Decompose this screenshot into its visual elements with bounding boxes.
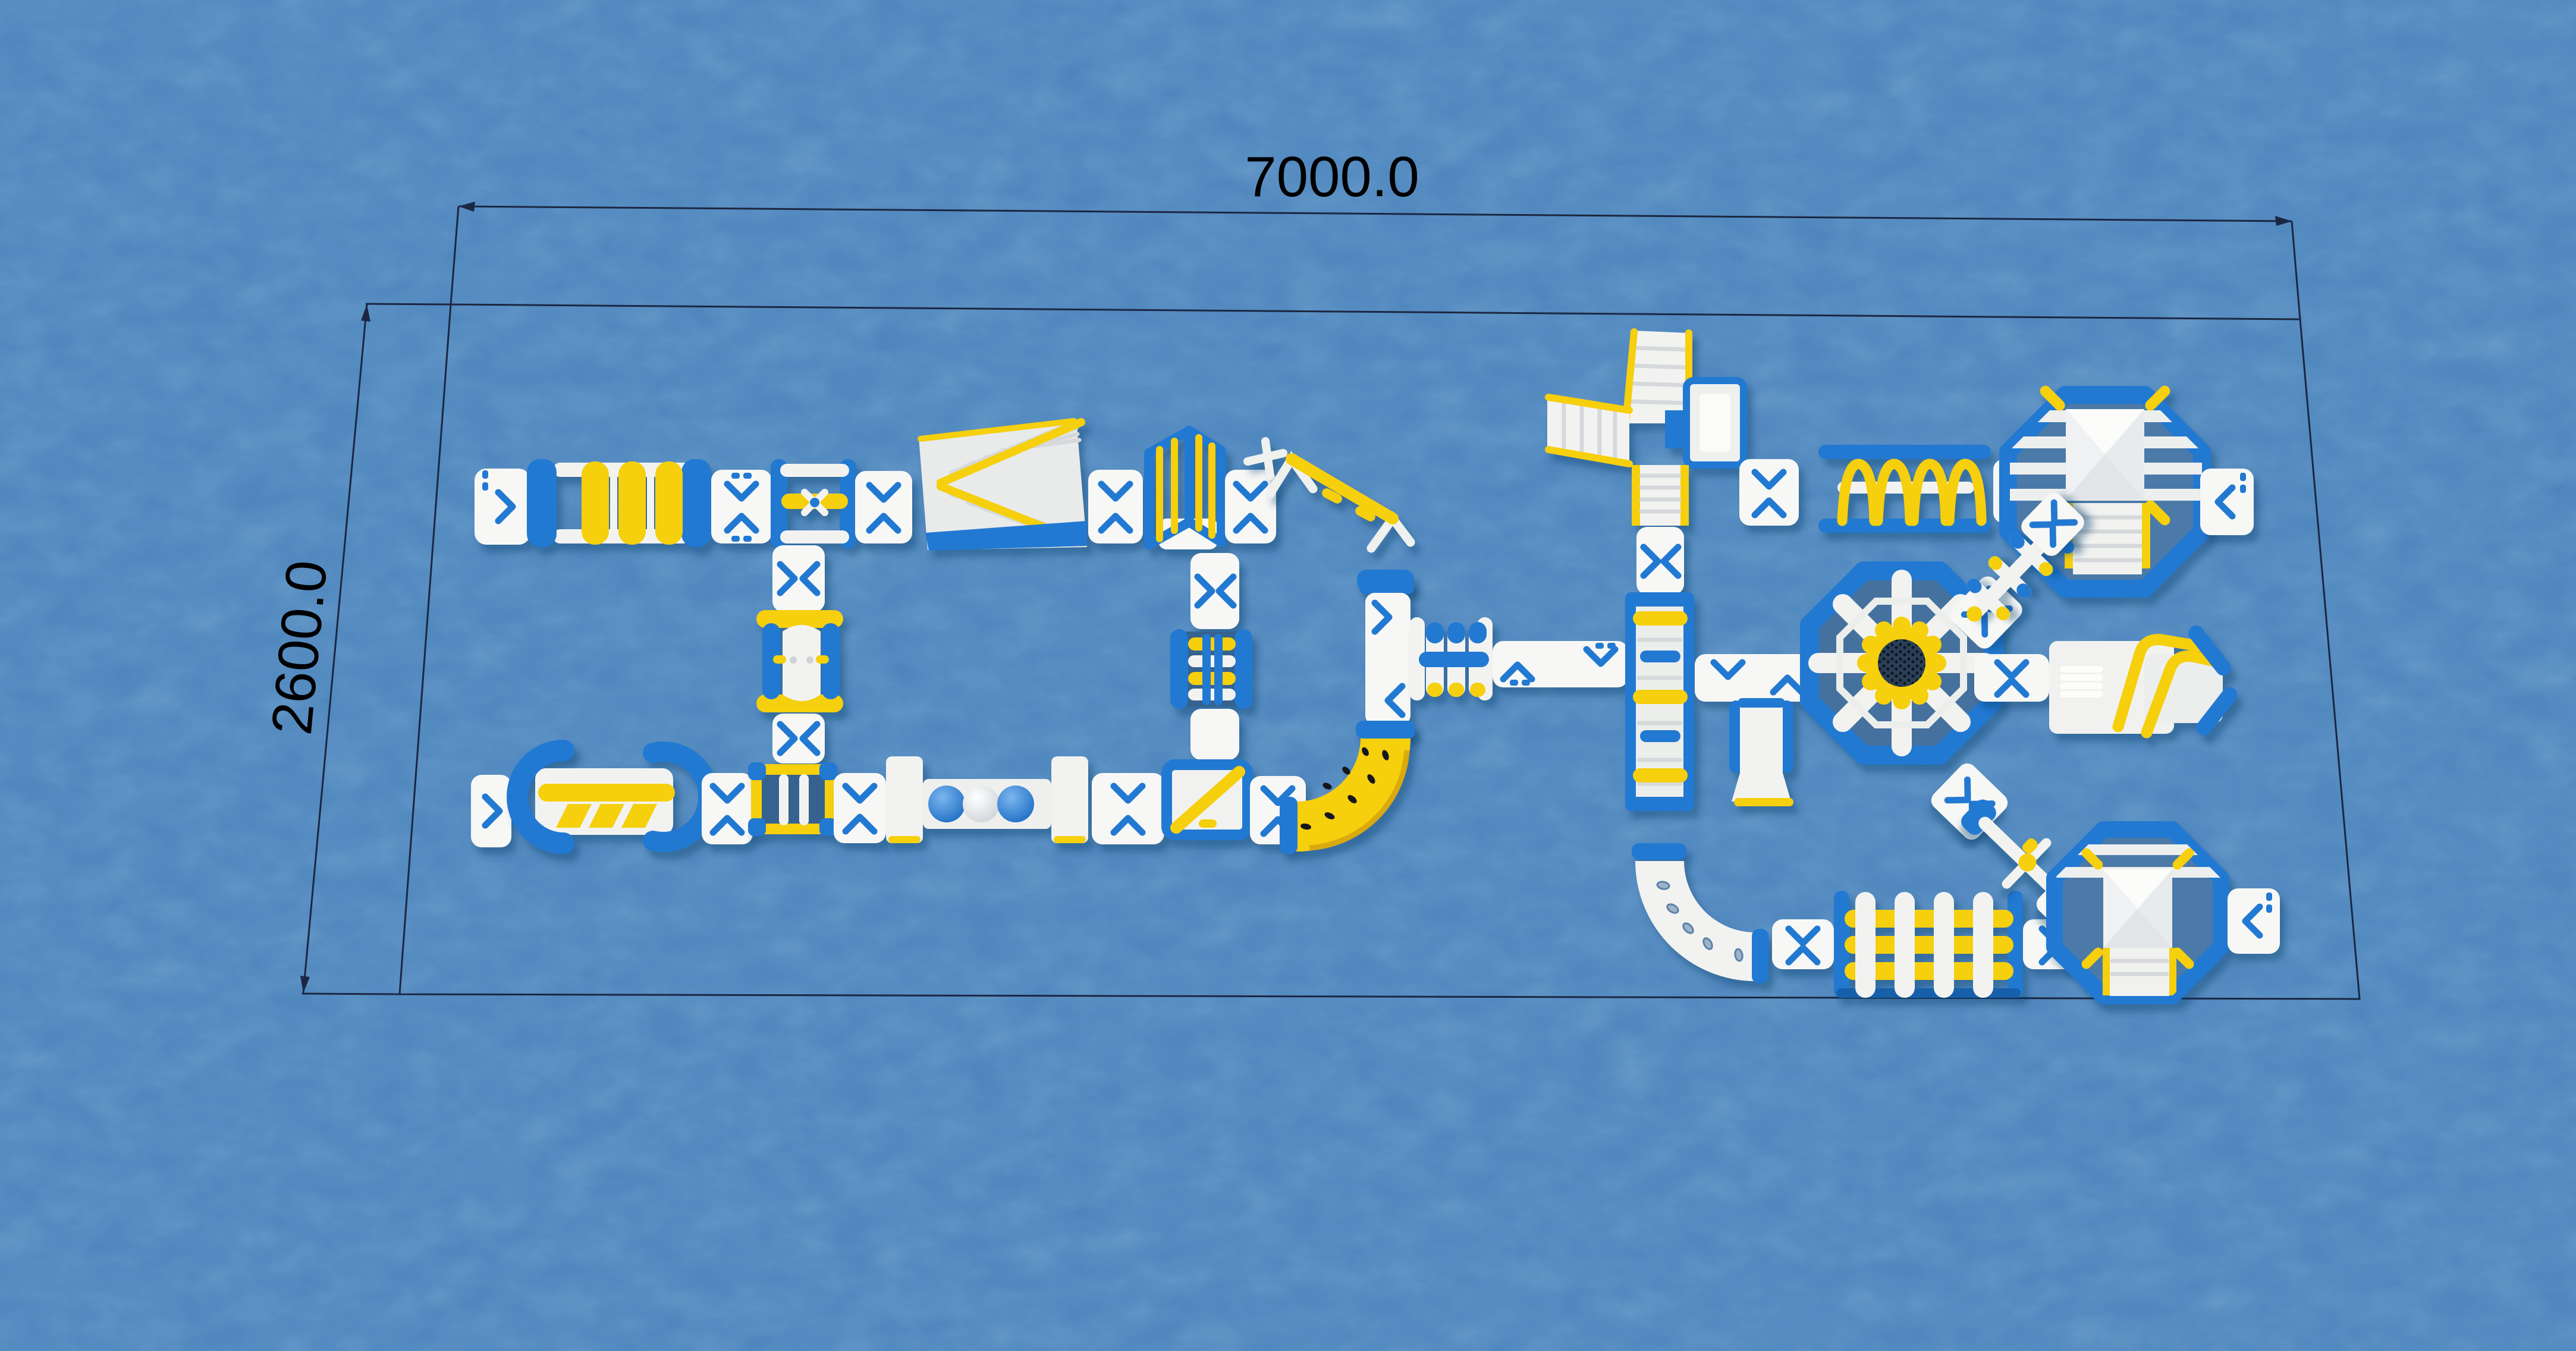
walk-pad xyxy=(1225,470,1276,543)
beam-junction xyxy=(1167,765,1248,835)
walk-pad xyxy=(711,470,772,543)
ladder-tower xyxy=(1149,431,1221,549)
summit-climb xyxy=(919,419,1087,551)
walk-pad xyxy=(855,471,912,543)
walk-pad xyxy=(1739,459,1799,526)
walk-pad xyxy=(772,545,825,612)
water-park-plan: 7000.0 2600.0 xyxy=(0,0,2576,1351)
walk-pad xyxy=(2228,888,2280,954)
walk-pad xyxy=(471,775,511,847)
walk-pad xyxy=(1493,641,1628,687)
width-label: 7000.0 xyxy=(1245,145,1419,209)
arch-hurdles xyxy=(1818,445,1991,533)
overunder-gates xyxy=(1409,617,1493,700)
roller-bridge xyxy=(527,459,711,547)
rung-frame xyxy=(748,762,837,836)
walk-pad xyxy=(2200,469,2254,535)
start-platform xyxy=(475,469,530,545)
walk-pad xyxy=(1772,919,1834,969)
walk-pad xyxy=(1088,470,1143,543)
walk-pad xyxy=(1974,654,2049,702)
walk-pad xyxy=(702,773,753,844)
teeter-lane xyxy=(756,610,843,712)
mini-slide xyxy=(1729,698,1793,806)
walk-pad xyxy=(772,714,825,764)
walk-pad xyxy=(1092,773,1164,844)
hurdle-gate xyxy=(771,459,856,548)
render-viewport: 7000.0 2600.0 xyxy=(0,0,2576,1351)
walk-pad xyxy=(1359,580,1414,737)
climb-frame xyxy=(1170,629,1252,709)
walk-pad xyxy=(1190,709,1239,760)
stair-climb xyxy=(1632,465,1689,526)
walk-pad xyxy=(834,773,886,843)
walk-pad xyxy=(1190,553,1239,629)
walk-pad xyxy=(1636,527,1684,595)
jump-cube-south xyxy=(2054,830,2223,997)
flip-lane xyxy=(1625,592,1694,811)
